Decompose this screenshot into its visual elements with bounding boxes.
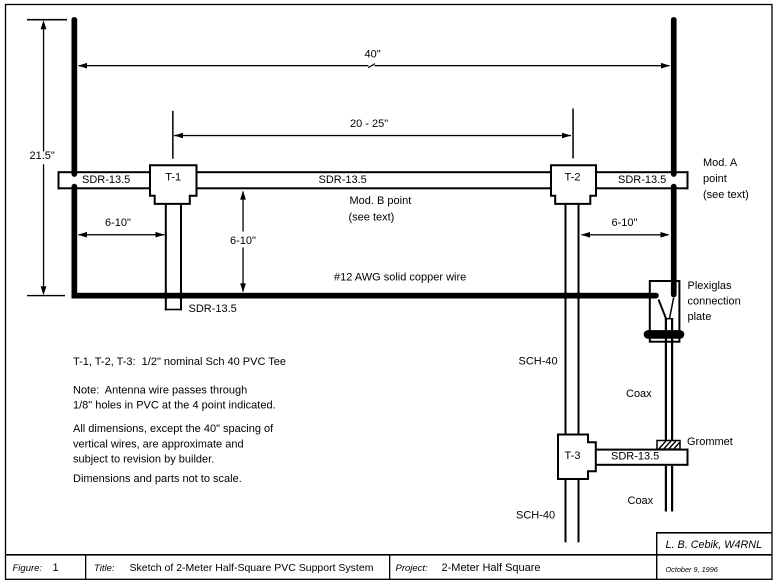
svg-text:T-2: T-2 (565, 172, 581, 184)
svg-text:Mod. A: Mod. A (703, 157, 738, 169)
svg-text:Sketch of 2-Meter Half-Square: Sketch of 2-Meter Half-Square PVC Suppor… (130, 562, 374, 574)
svg-text:T-1, T-2, T-3: 1/2" nominal S: T-1, T-2, T-3: 1/2" nominal Sch 40 PVC T… (73, 356, 286, 368)
svg-text:October 9, 1996: October 9, 1996 (666, 565, 719, 574)
svg-text:Title:: Title: (94, 563, 115, 574)
svg-text:6-10": 6-10" (105, 217, 131, 229)
svg-text:vertical wires, are approximat: vertical wires, are approximate and (73, 439, 244, 451)
svg-text:T-1: T-1 (165, 172, 181, 184)
svg-text:Grommet: Grommet (687, 436, 733, 448)
svg-text:1: 1 (53, 562, 59, 574)
svg-text:SDR-13.5: SDR-13.5 (319, 174, 367, 186)
svg-text:40": 40" (365, 49, 381, 61)
svg-text:SDR-13.5: SDR-13.5 (611, 451, 659, 463)
svg-text:All dimensions, except the 40": All dimensions, except the 40" spacing o… (73, 423, 274, 435)
svg-text:2-Meter Half Square: 2-Meter Half Square (442, 562, 541, 574)
svg-text:T-3: T-3 (565, 450, 581, 462)
svg-text:SCH-40: SCH-40 (519, 356, 558, 368)
svg-text:(see text): (see text) (349, 212, 395, 224)
svg-text:point: point (703, 173, 727, 185)
svg-text:21.5": 21.5" (30, 150, 55, 162)
svg-text:20 - 25": 20 - 25" (350, 118, 388, 130)
svg-text:SDR-13.5: SDR-13.5 (189, 303, 237, 315)
svg-text:Project:: Project: (396, 563, 429, 574)
svg-text:connection: connection (688, 296, 741, 308)
svg-text:SDR-13.5: SDR-13.5 (82, 174, 130, 186)
svg-text:L. B. Cebik, W4RNL: L. B. Cebik, W4RNL (666, 539, 763, 551)
svg-text:Mod. B point: Mod. B point (350, 195, 412, 207)
svg-text:subject to revision by builder: subject to revision by builder. (73, 454, 214, 466)
svg-text:SCH-40: SCH-40 (516, 510, 555, 522)
svg-text:6-10": 6-10" (230, 235, 256, 247)
svg-text:6-10": 6-10" (612, 217, 638, 229)
svg-text:Coax: Coax (626, 388, 652, 400)
svg-text:(see text): (see text) (703, 189, 749, 201)
svg-text:1/8" holes in PVC at the 4 poi: 1/8" holes in PVC at the 4 point indicat… (73, 400, 276, 412)
svg-text:Plexiglas: Plexiglas (688, 280, 733, 292)
svg-text:Note: Antenna wire passes thr: Note: Antenna wire passes through (73, 385, 247, 397)
svg-text:Figure:: Figure: (13, 563, 43, 574)
svg-text:Coax: Coax (628, 495, 654, 507)
svg-text:Dimensions and parts not to sc: Dimensions and parts not to scale. (73, 473, 242, 485)
svg-text:SDR-13.5: SDR-13.5 (618, 174, 666, 186)
svg-text:plate: plate (688, 311, 712, 323)
svg-text:#12 AWG solid copper wire: #12 AWG solid copper wire (334, 272, 466, 284)
